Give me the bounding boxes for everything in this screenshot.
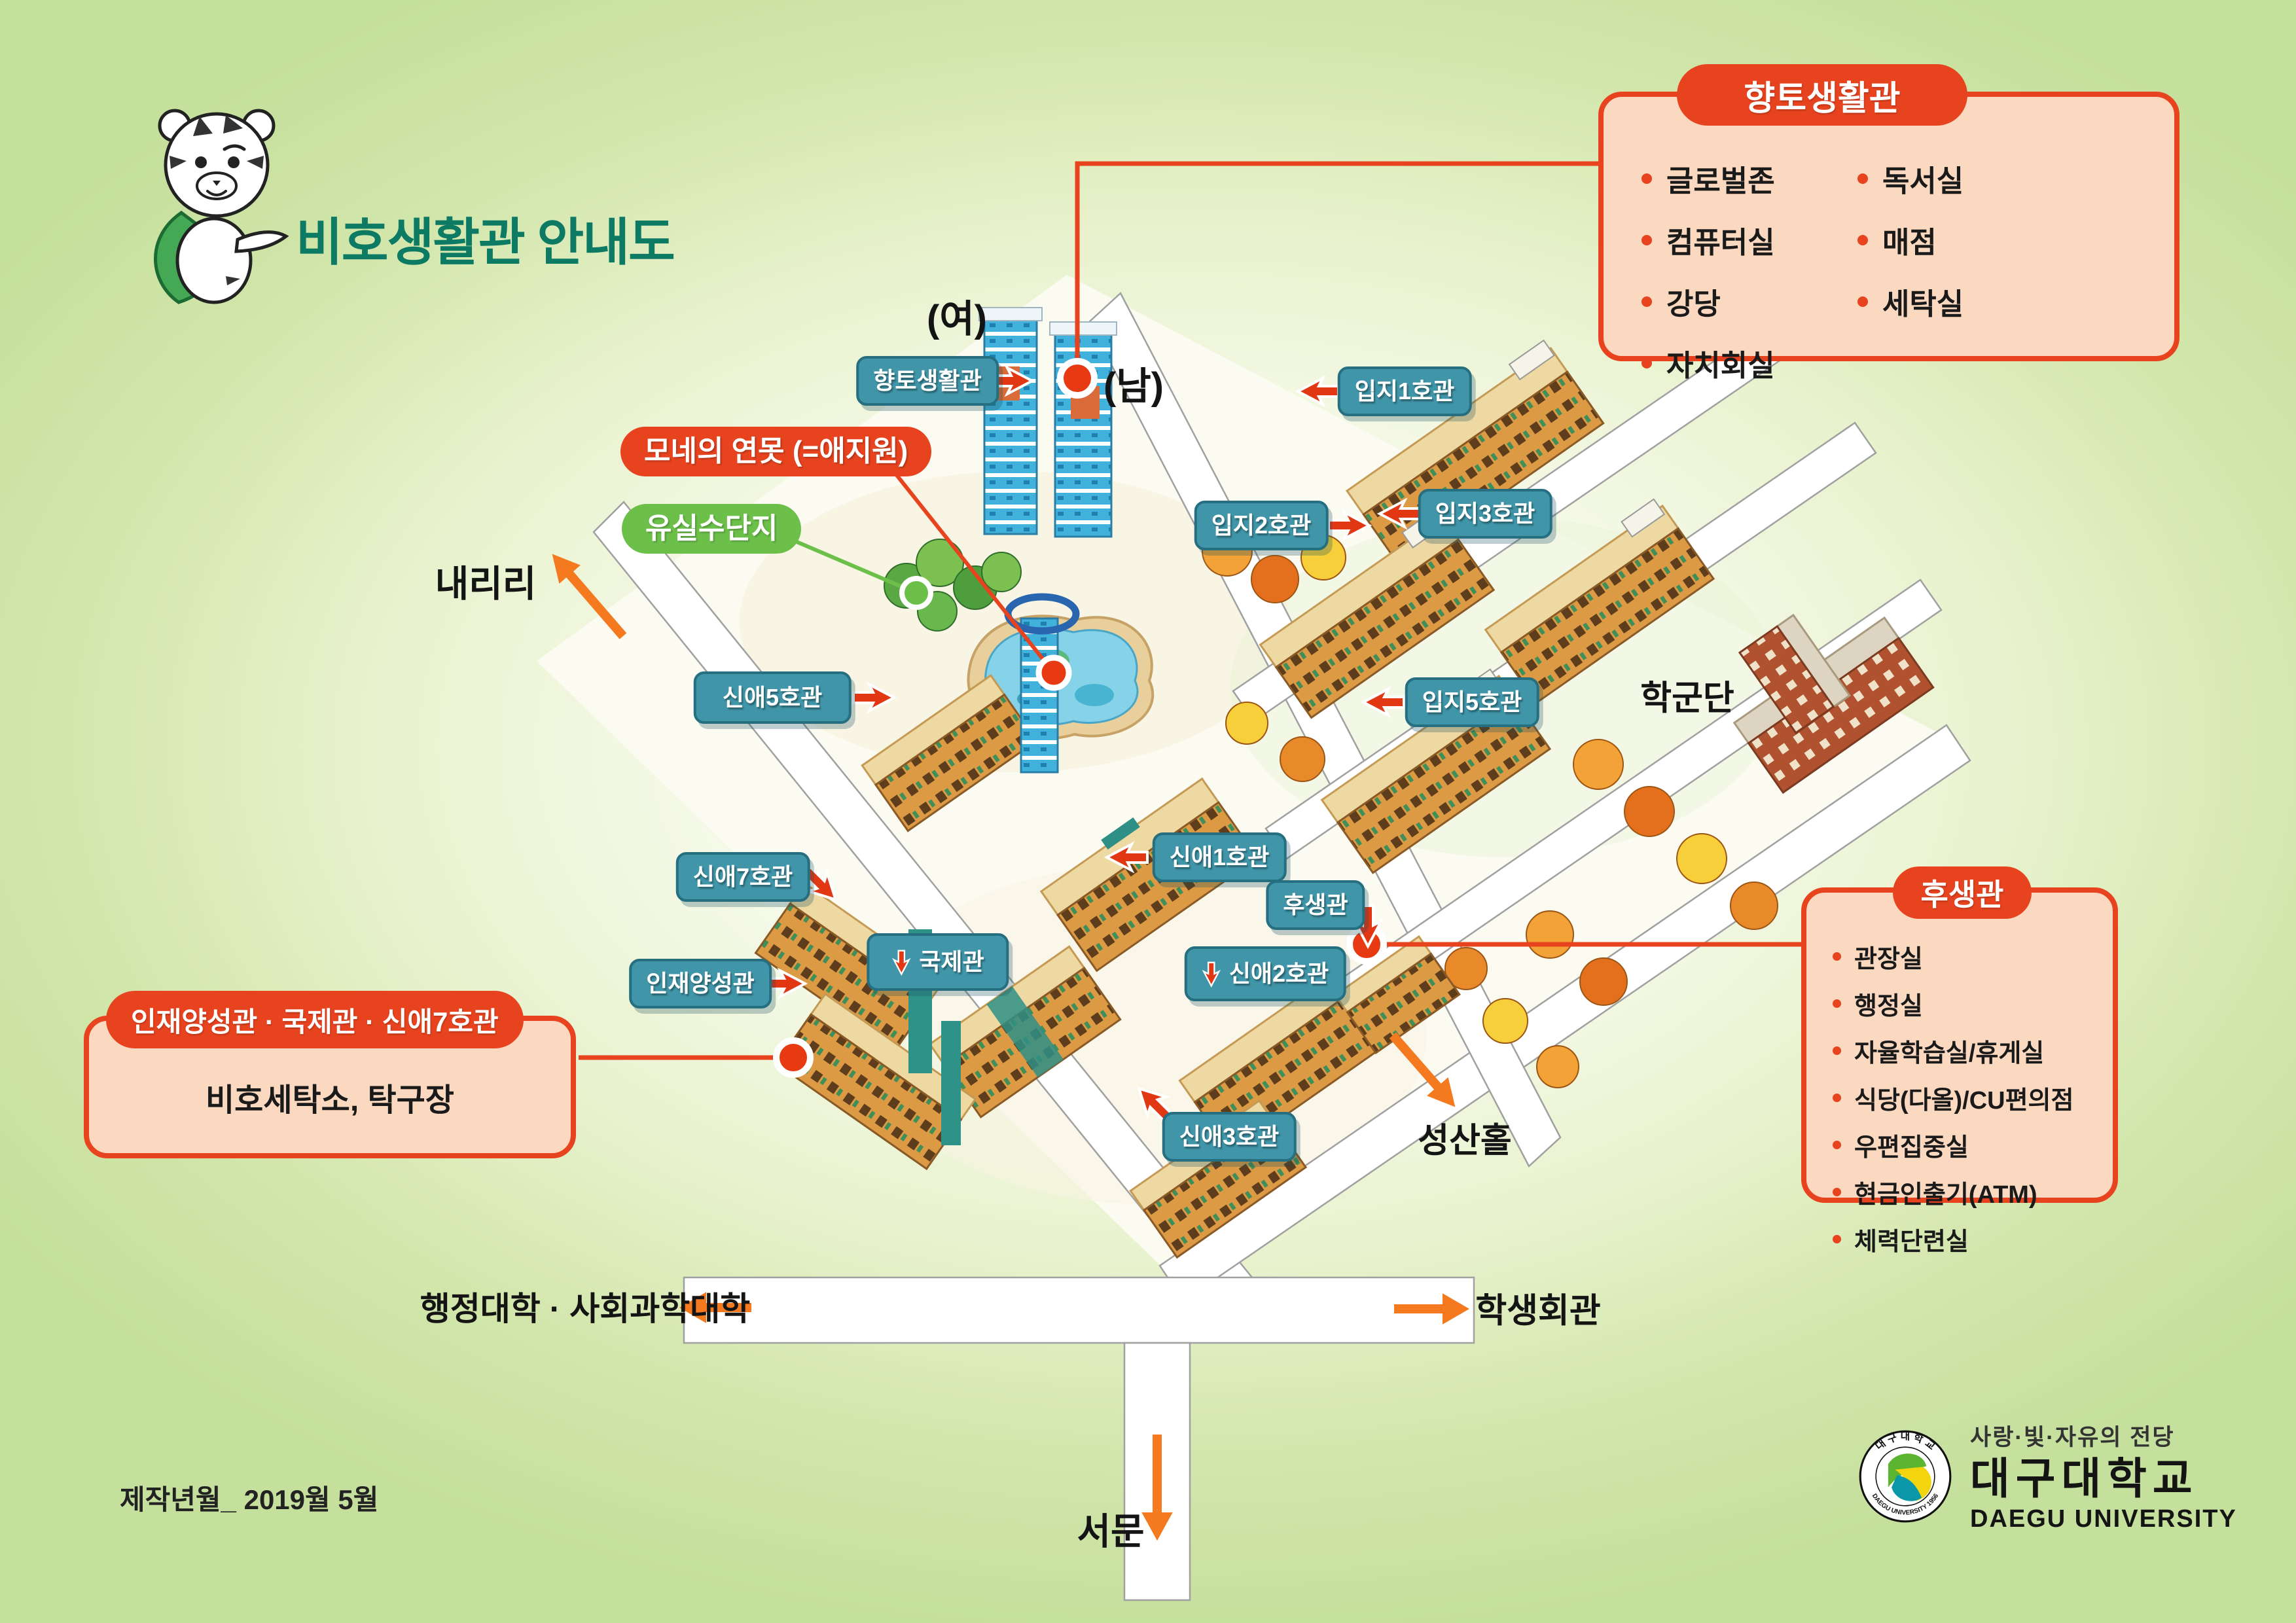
bullet-icon (1833, 1188, 1841, 1196)
list-item: 현금인출기(ATM) (1833, 1174, 2100, 1210)
label-hakgundan: 학군단 (1640, 671, 1734, 720)
bullet-icon (1641, 173, 1652, 184)
label-seongsan-hall: 성산홀 (1418, 1113, 1512, 1162)
callout-husaeng: 후생관 관장실 행정실 자율학습실/휴게실 식당(다올)/CU편의점 우편집중실… (1801, 887, 2118, 1203)
badge-shinae7: 신애7호관 (676, 852, 810, 902)
list-item: 세탁실 (1857, 280, 1964, 323)
tiger-mascot (134, 85, 301, 314)
dot-hyangto (1060, 361, 1094, 395)
label-yeo: (여) (927, 288, 987, 343)
badge-ipji1: 입지1호관 (1338, 366, 1472, 416)
callout-injae: 인재양성관 · 국제관 · 신애7호관 비호세탁소, 탁구장 (84, 1016, 576, 1158)
label-admin-college: 행정대학 · 사회과학대학 (420, 1283, 750, 1330)
badge-ipji2: 입지2호관 (1194, 501, 1329, 550)
husaeng-items: 관장실 행정실 자율학습실/휴게실 식당(다올)/CU편의점 우편집중실 현금인… (1806, 893, 2113, 1268)
pill-orchard: 유실수단지 (622, 504, 801, 554)
university-seal-icon: 대 구 대 학 교 DAEGU UNIVERSITY 1956 (1857, 1429, 1953, 1524)
list-item: 자율학습실/휴게실 (1833, 1033, 2100, 1069)
road-south-horizontal (684, 1277, 1474, 1343)
list-item: 독서실 (1857, 157, 1964, 200)
badge-shinae1: 신애1호관 (1153, 832, 1287, 882)
badge-shinae2: 신애2호관 (1185, 946, 1346, 1001)
badge-injae: 인재양성관 (629, 959, 772, 1008)
list-item: 매점 (1857, 219, 1964, 261)
down-arrow-icon (1202, 959, 1221, 988)
list-item: 글로벌존 (1641, 157, 1857, 200)
list-item: 우편집중실 (1833, 1127, 2100, 1163)
mascot-eye-right (228, 156, 240, 168)
list-item: 식당(다올)/CU편의점 (1833, 1080, 2100, 1116)
university-name-en: DAEGU UNIVERSITY (1970, 1505, 2237, 1533)
label-west-gate: 서문 (1077, 1503, 1144, 1556)
bullet-icon (1641, 235, 1652, 245)
label-nam: (남) (1103, 355, 1164, 410)
badge-shinae3: 신애3호관 (1162, 1112, 1297, 1162)
mascot-body (177, 219, 251, 302)
bullet-icon (1857, 235, 1868, 245)
list-item: 자치회실 (1641, 342, 1857, 384)
university-name-kr: 대구대학교 (1970, 1456, 2237, 1501)
list-item: 체력단련실 (1833, 1221, 2100, 1257)
bullet-icon (1833, 952, 1841, 961)
list-item: 행정실 (1833, 986, 2100, 1022)
badge-shinae5: 신애5호관 (694, 671, 852, 724)
badge-ipji3: 입지3호관 (1418, 489, 1552, 539)
badge-gukje: 국제관 (867, 933, 1009, 991)
dot-injae (776, 1041, 810, 1075)
list-item: 강당 (1641, 280, 1857, 323)
bullet-icon (1857, 173, 1868, 184)
hyangto-col1: 글로벌존 컴퓨터실 강당 자치회실 (1641, 157, 1857, 384)
mascot-head (166, 114, 268, 216)
label-naeriri: 내리리 (435, 555, 537, 608)
university-logo: 대 구 대 학 교 DAEGU UNIVERSITY 1956 사랑·빛·자유의… (1857, 1419, 2237, 1533)
badge-ipji5: 입지5호관 (1405, 677, 1539, 727)
callout-hyangto-title: 향토생활관 (1677, 64, 1967, 126)
bullet-icon (1857, 296, 1868, 307)
bullet-icon (1833, 999, 1841, 1008)
hyangto-col2: 독서실 매점 세탁실 (1857, 157, 1964, 384)
dot-pond (1039, 658, 1069, 688)
university-motto: 사랑·빛·자유의 전당 (1970, 1419, 2237, 1452)
bullet-icon (1641, 358, 1652, 368)
list-item: 컴퓨터실 (1641, 219, 1857, 261)
callout-husaeng-title: 후생관 (1893, 866, 2032, 919)
callout-hyangto: 향토생활관 글로벌존 컴퓨터실 강당 자치회실 독서실 매점 세탁실 (1598, 92, 2179, 361)
campus-map-poster: 비호생활관 안내도 (여) (남) 내리리 학군단 성산홀 행정대학 · 사회과… (0, 0, 2296, 1623)
down-arrow-icon (891, 948, 911, 976)
callout-injae-title: 인재양성관 · 국제관 · 신애7호관 (106, 991, 524, 1048)
bullet-icon (1833, 1094, 1841, 1102)
dot-orchard (902, 579, 931, 607)
pill-monet-pond: 모네의 연못 (=애지원) (620, 427, 931, 476)
label-student-union: 학생회관 (1475, 1283, 1600, 1332)
badge-husaeng: 후생관 (1266, 880, 1365, 930)
bullet-icon (1641, 296, 1652, 307)
list-item: 관장실 (1833, 938, 2100, 974)
mascot-eye-left (195, 156, 207, 168)
bullet-icon (1833, 1046, 1841, 1055)
badge-hyangto: 향토생활관 (856, 356, 999, 406)
bullet-icon (1833, 1235, 1841, 1243)
production-note: 제작년월_ 2019월 5월 (120, 1478, 378, 1518)
bullet-icon (1833, 1141, 1841, 1149)
page-title: 비호생활관 안내도 (296, 202, 674, 275)
